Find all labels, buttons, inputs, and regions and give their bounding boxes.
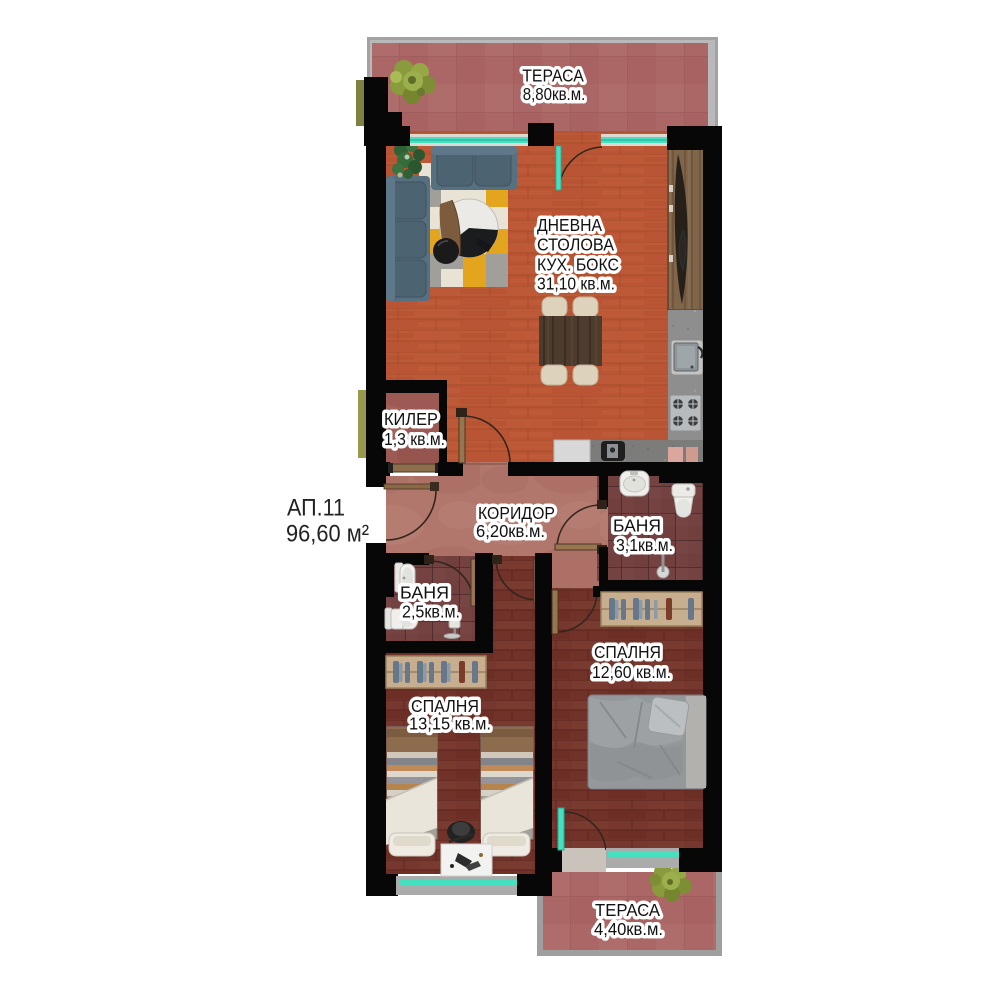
svg-text:КУХ. БОКС: КУХ. БОКС <box>537 255 619 275</box>
svg-text:АП.11: АП.11 <box>287 495 345 522</box>
svg-text:БАНЯ: БАНЯ <box>400 583 449 603</box>
svg-text:ДНЕВНА: ДНЕВНА <box>537 215 602 235</box>
svg-text:4,40кв.м.: 4,40кв.м. <box>594 919 663 939</box>
svg-text:12,60 кв.м.: 12,60 кв.м. <box>592 662 671 682</box>
svg-text:1,3 кв.м.: 1,3 кв.м. <box>384 429 445 449</box>
svg-text:ТЕРАСА: ТЕРАСА <box>595 900 660 920</box>
svg-text:6,20кв.м.: 6,20кв.м. <box>476 521 545 541</box>
svg-text:КОРИДОР: КОРИДОР <box>478 503 555 523</box>
svg-text:СТОЛОВА: СТОЛОВА <box>537 235 614 255</box>
svg-text:13,15 кв.м.: 13,15 кв.м. <box>409 714 491 734</box>
svg-text:8,80кв.м.: 8,80кв.м. <box>523 84 586 104</box>
svg-text:2,5кв.м.: 2,5кв.м. <box>402 602 460 622</box>
svg-text:ТЕРАСА: ТЕРАСА <box>522 66 584 86</box>
svg-text:96,60 м²: 96,60 м² <box>286 521 369 548</box>
svg-text:СПАЛНЯ: СПАЛНЯ <box>594 642 661 662</box>
svg-text:31,10 кв.м.: 31,10 кв.м. <box>537 274 615 294</box>
svg-text:БАНЯ: БАНЯ <box>613 516 661 536</box>
svg-text:КИЛЕР: КИЛЕР <box>384 409 438 429</box>
svg-text:3,1кв.м.: 3,1кв.м. <box>616 535 673 555</box>
